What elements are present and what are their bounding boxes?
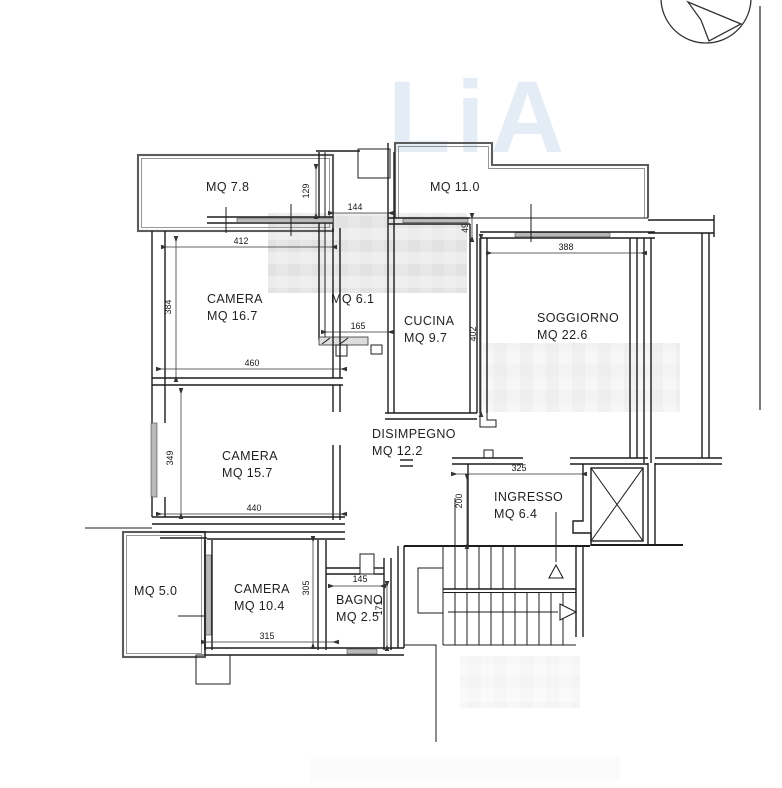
blurred-patches (268, 213, 680, 781)
dim-label: 412 (234, 236, 249, 246)
floor-plan-page: LiA (0, 0, 782, 788)
room-label-camera-157: CAMERA (222, 449, 278, 463)
dim-label: 305 (301, 581, 311, 596)
dim-label: 165 (351, 321, 366, 331)
north-arrow-icon (661, 0, 751, 43)
elevator-shaft (591, 468, 643, 541)
dim-label: 145 (353, 574, 368, 584)
room-area-camera-157: MQ 15.7 (222, 466, 273, 480)
dim-label: 460 (245, 358, 260, 368)
room-label-ingresso: INGRESSO (494, 490, 563, 504)
dim-label: 144 (348, 202, 363, 212)
dim-label: 315 (260, 631, 275, 641)
room-area-camera-104: MQ 10.4 (234, 599, 285, 613)
dim-label: 388 (559, 242, 574, 252)
room-label-soggiorno: SOGGIORNO (537, 311, 619, 325)
room-area-loggia-61: MQ 6.1 (331, 292, 374, 306)
dim-label: 129 (301, 184, 311, 199)
stair-up-triangle (549, 565, 563, 578)
dim-label: 325 (512, 463, 527, 473)
dim-label: 49 (460, 223, 470, 233)
dim-label: 384 (163, 300, 173, 315)
dim-label: 200 (454, 494, 464, 509)
blurred-patch (310, 757, 620, 781)
room-label-bagno: BAGNO (336, 593, 383, 607)
dim-label: 402 (468, 327, 478, 342)
room-label-disimpegno: DISIMPEGNO (372, 427, 456, 441)
stair-arrow-head (560, 604, 576, 620)
floor-plan-drawing: LiA (0, 0, 782, 788)
room-label-camera-167: CAMERA (207, 292, 263, 306)
room-area-soggiorno: MQ 22.6 (537, 328, 588, 342)
room-area-balcony-50: MQ 5.0 (134, 584, 177, 598)
dim-label: 440 (247, 503, 262, 513)
staircase (418, 512, 576, 645)
room-area-camera-167: MQ 16.7 (207, 309, 258, 323)
room-area-disimpegno: MQ 12.2 (372, 444, 423, 458)
dim-label: 349 (165, 451, 175, 466)
watermark-text: LiA (388, 60, 570, 174)
room-area-balcony-110: MQ 11.0 (430, 180, 480, 194)
room-area-ingresso: MQ 6.4 (494, 507, 537, 521)
room-label-cucina: CUCINA (404, 314, 455, 328)
blurred-patch (460, 656, 580, 708)
room-area-balcony-78: MQ 7.8 (206, 180, 249, 194)
blurred-patch (268, 213, 467, 293)
room-area-bagno: MQ 2.5 (336, 610, 379, 624)
room-area-cucina: MQ 9.7 (404, 331, 447, 345)
room-label-camera-104: CAMERA (234, 582, 290, 596)
